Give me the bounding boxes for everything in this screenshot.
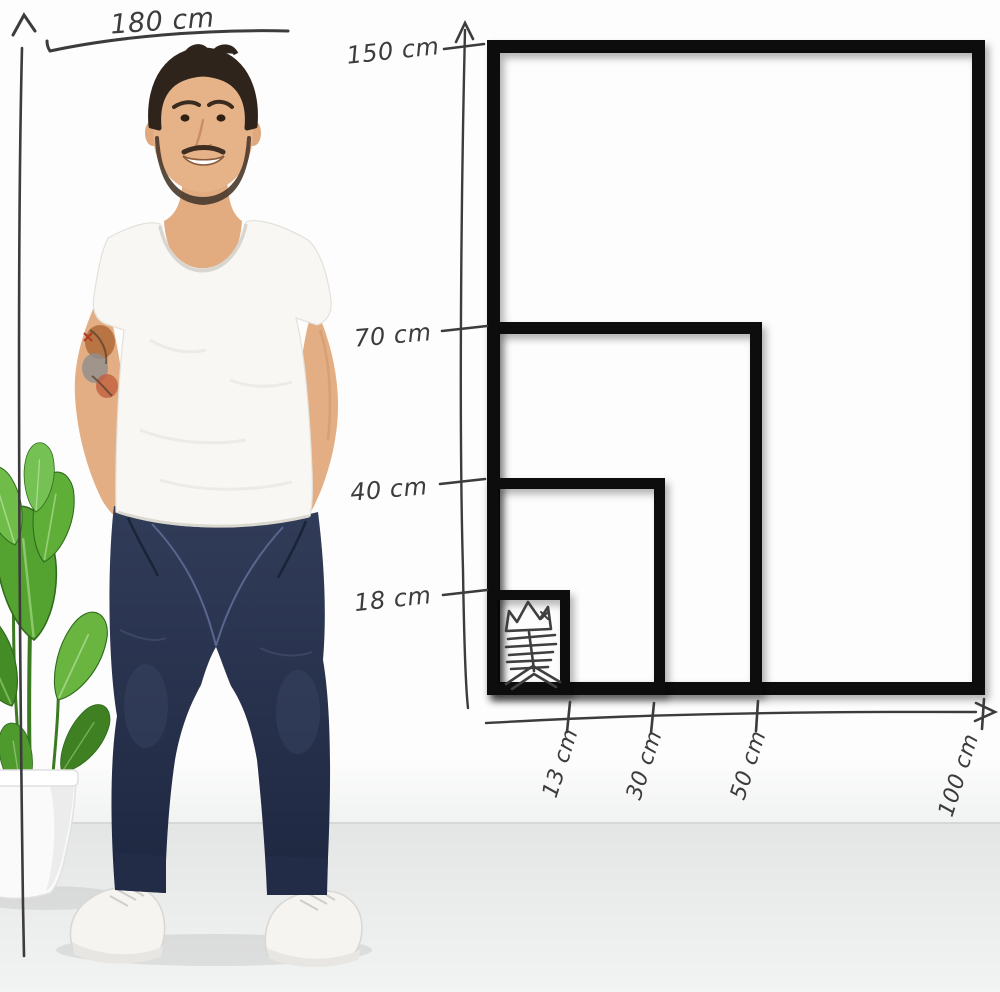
- person-eye-left: [181, 114, 190, 121]
- person-face: [153, 76, 253, 192]
- scene-canvas: 180 cm 150 cm 70 cm 40 cm 18 cm 13 cm: [0, 0, 1000, 992]
- product-size-diagram: 180 cm 150 cm 70 cm 40 cm 18 cm 13 cm: [0, 0, 1000, 992]
- person-eye-right: [217, 114, 226, 121]
